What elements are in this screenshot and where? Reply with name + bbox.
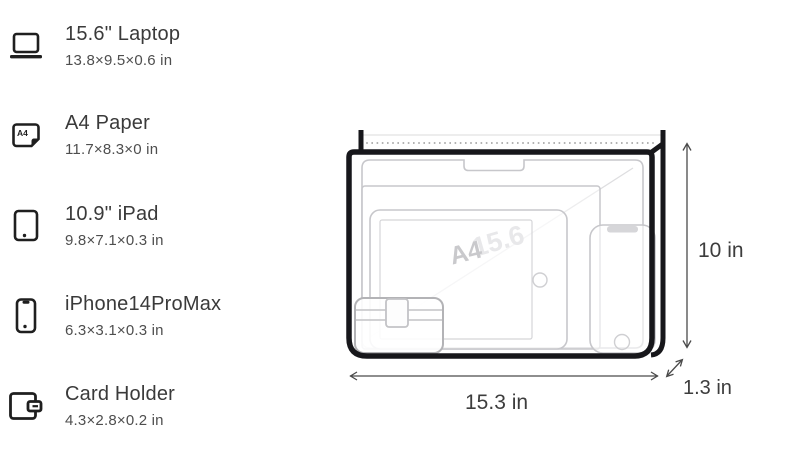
list-item-ipad: 10.9" iPad 9.8×7.1×0.3 in [8, 202, 164, 249]
iphone-notch [607, 226, 638, 233]
iphone-outline [590, 225, 655, 353]
width-dimension-arrow [350, 372, 658, 380]
item-dimensions: 9.8×7.1×0.3 in [65, 233, 164, 249]
item-name: A4 Paper [65, 111, 158, 135]
height-dimension-arrow [683, 144, 691, 348]
depth-dimension-arrow [667, 360, 683, 377]
a4-icon-label: A4 [17, 128, 28, 138]
depth-dimension-label: 1.3 in [683, 377, 732, 400]
list-item-card-holder: Card Holder 4.3×2.8×0.2 in [8, 382, 175, 429]
item-name: 10.9" iPad [65, 202, 164, 226]
a4-paper-icon: A4 [8, 115, 44, 155]
item-name: Card Holder [65, 382, 175, 406]
card-holder-tab [386, 299, 408, 327]
list-item-a4-paper: A4 A4 Paper 11.7×8.3×0 in [8, 111, 158, 158]
item-name: iPhone14ProMax [65, 292, 221, 316]
item-dimensions: 4.3×2.8×0.2 in [65, 413, 175, 429]
card-holder-icon [8, 386, 44, 426]
bag-line-art [330, 118, 770, 408]
width-dimension-label: 15.3 in [465, 391, 528, 415]
list-item-laptop: 15.6" Laptop 13.8×9.5×0.6 in [8, 22, 180, 69]
product-size-infographic: 15.6" Laptop 13.8×9.5×0.6 in A4 A4 Paper… [0, 0, 800, 455]
item-dimensions: 11.7×8.3×0 in [65, 142, 158, 158]
item-name: 15.6" Laptop [65, 22, 180, 46]
iphone-icon [8, 296, 44, 336]
laptop-icon [8, 26, 44, 66]
ipad-icon [8, 206, 44, 246]
list-item-iphone: iPhone14ProMax 6.3×3.1×0.3 in [8, 292, 221, 339]
item-dimensions: 13.8×9.5×0.6 in [65, 53, 180, 69]
item-dimensions: 6.3×3.1×0.3 in [65, 323, 221, 339]
height-dimension-label: 10 in [698, 239, 744, 263]
bag-capacity-diagram: 15.6 A4 10 in 15.3 in 1.3 in [330, 118, 770, 408]
